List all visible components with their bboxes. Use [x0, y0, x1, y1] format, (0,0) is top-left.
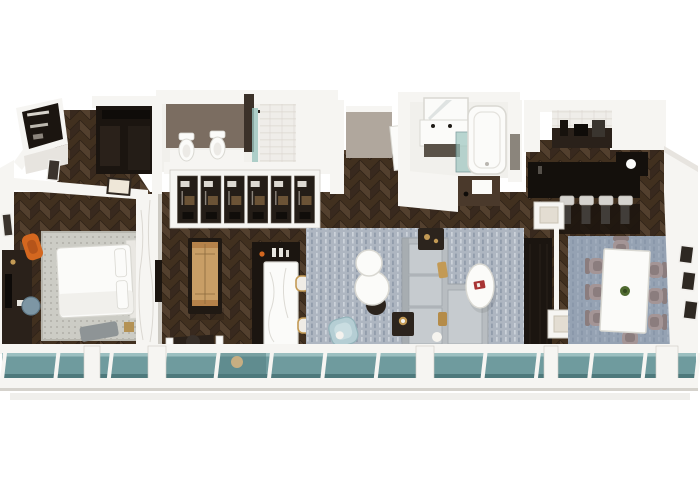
gray-door	[510, 134, 520, 170]
nightstand	[124, 322, 134, 332]
bidet	[210, 131, 225, 159]
partition-tv	[155, 260, 162, 302]
wall-art-frame	[2, 214, 13, 237]
dining-room	[568, 236, 670, 350]
wardrobe	[164, 162, 342, 228]
round-side-table	[231, 356, 243, 368]
window-wall	[0, 344, 700, 391]
bar-sink	[626, 159, 636, 169]
gold-pillow	[438, 312, 447, 326]
pillow	[116, 280, 128, 309]
desk-chair	[22, 297, 40, 315]
greige-wall	[346, 112, 392, 158]
bar-faucet	[538, 166, 542, 174]
kitchen-sink-unit	[560, 120, 568, 136]
framed-art	[107, 178, 130, 195]
dining-chair	[648, 314, 667, 330]
living-room	[306, 228, 524, 350]
dining-chair	[585, 258, 604, 274]
bath1-feature-wall	[166, 104, 244, 148]
framed-art	[679, 245, 694, 263]
shower-glass	[252, 108, 258, 168]
floorplan-svg	[0, 0, 700, 500]
vanity-under-cabinet	[424, 144, 460, 157]
shuffleboard-table	[188, 238, 222, 314]
bath2-front-face	[398, 170, 458, 212]
window-head-rail	[0, 344, 698, 354]
faucet	[448, 124, 452, 128]
bed	[56, 240, 140, 322]
desk-lamp	[10, 259, 15, 264]
console-table	[418, 228, 444, 250]
dining-chair	[648, 262, 667, 278]
glass-wall-edge	[554, 228, 559, 314]
white-throw	[432, 332, 442, 342]
ground-shadow	[10, 393, 690, 400]
bath1-tile-wall	[260, 104, 298, 166]
towel	[472, 180, 492, 194]
coffee-machine	[592, 120, 605, 137]
dining-chair	[648, 288, 667, 304]
bar-marble-table	[264, 262, 298, 346]
appliance	[574, 124, 588, 136]
column-a	[534, 202, 564, 229]
framed-art	[683, 300, 698, 319]
pillow	[114, 249, 126, 278]
coffee-table-small	[356, 250, 382, 276]
dining-table	[600, 249, 650, 333]
toilet	[179, 133, 194, 161]
entry-art-frame	[47, 160, 60, 181]
desk-tv	[5, 274, 12, 308]
floorplan-render	[0, 0, 700, 500]
framed-art	[681, 271, 696, 290]
right-wall	[664, 146, 698, 350]
tub-drain	[485, 162, 489, 166]
faucet	[431, 124, 435, 128]
dressing-right-wall	[152, 104, 162, 196]
